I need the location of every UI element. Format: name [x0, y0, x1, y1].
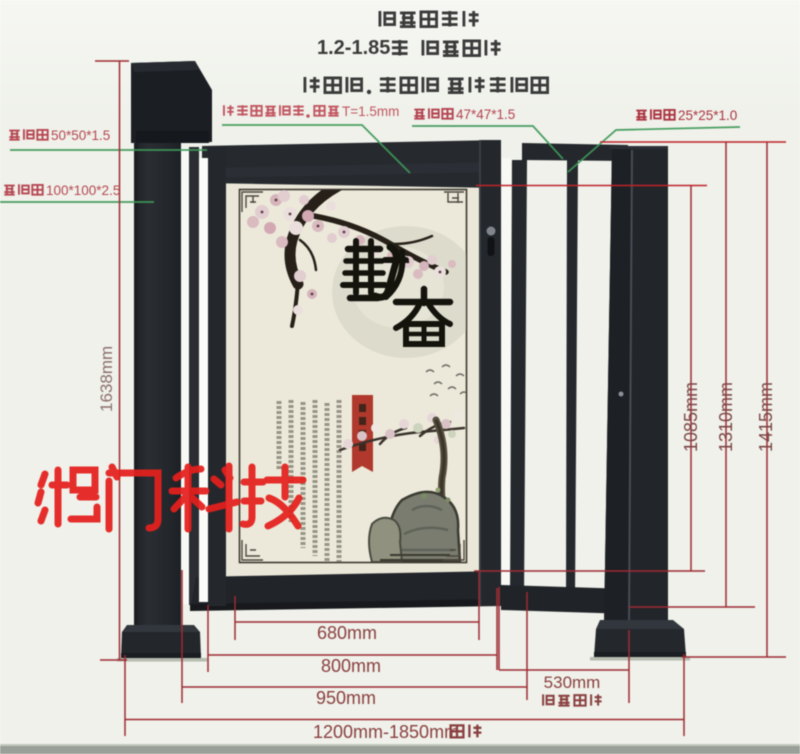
- svg-text:1085mm: 1085mm: [681, 382, 701, 452]
- svg-text:680mm: 680mm: [317, 623, 377, 643]
- svg-text:1415mm: 1415mm: [756, 382, 776, 452]
- svg-text:25*25*1.0: 25*25*1.0: [678, 108, 737, 123]
- svg-text:T=1.5mm: T=1.5mm: [342, 104, 399, 119]
- svg-text:530mm: 530mm: [544, 673, 601, 692]
- svg-text:1200mm-1850mm: 1200mm-1850mm: [313, 722, 459, 742]
- svg-text:950mm: 950mm: [316, 688, 376, 708]
- svg-text:47*47*1.5: 47*47*1.5: [456, 107, 515, 122]
- svg-text:100*100*2.5: 100*100*2.5: [46, 183, 120, 198]
- svg-text:1.2-1.85: 1.2-1.85: [317, 37, 390, 59]
- svg-text:800mm: 800mm: [321, 656, 381, 676]
- svg-text:1310mm: 1310mm: [716, 382, 736, 452]
- svg-text:50*50*1.5: 50*50*1.5: [51, 128, 110, 143]
- svg-text:1638mm: 1638mm: [97, 346, 116, 412]
